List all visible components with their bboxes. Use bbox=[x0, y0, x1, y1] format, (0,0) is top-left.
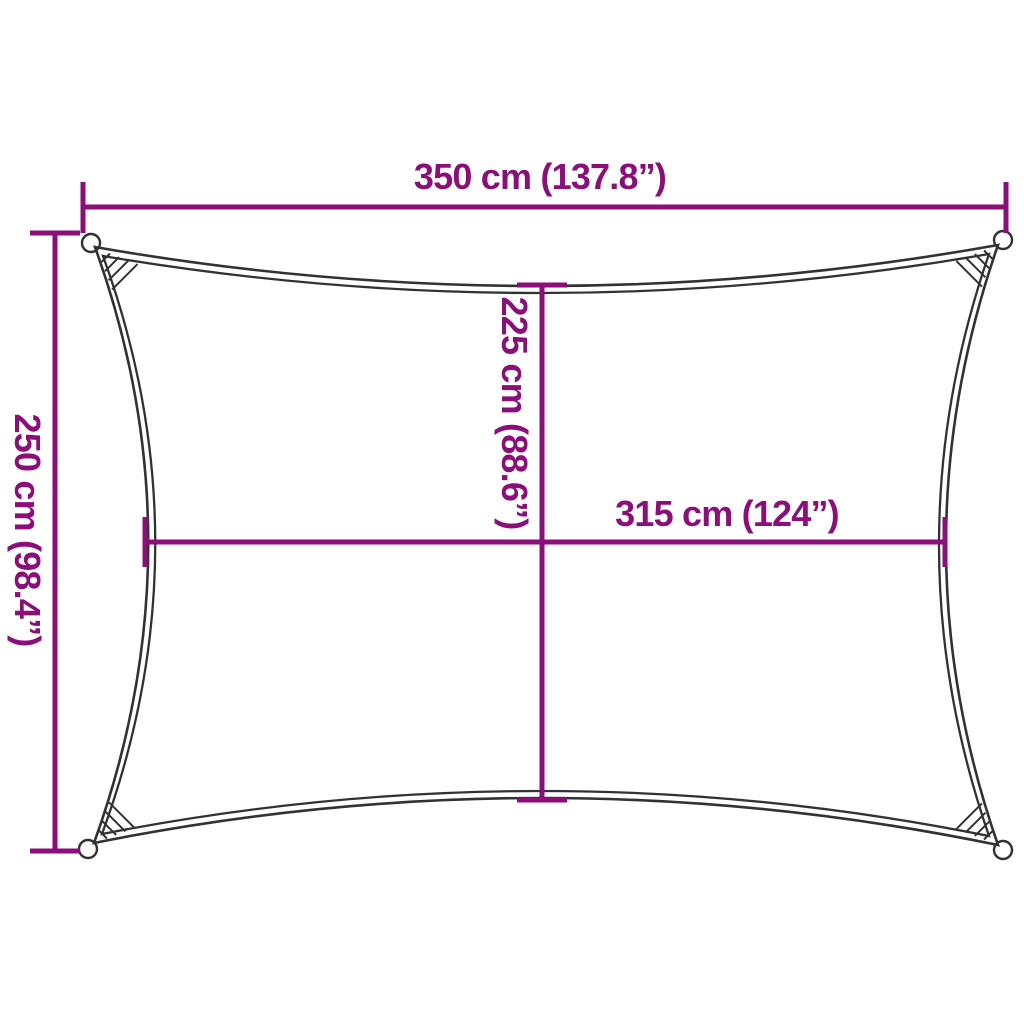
corner-ring-top-right-icon bbox=[994, 231, 1012, 249]
inner-height-dimension-label: 225 cm (88.6”) bbox=[494, 297, 534, 530]
outer-width-dimension-label: 350 cm (137.8”) bbox=[414, 157, 666, 197]
corner-stitches-group bbox=[90, 242, 1001, 848]
corner-ring-bottom-right-icon bbox=[994, 841, 1012, 859]
sail-outline-group bbox=[94, 245, 998, 845]
sail-inner-outline bbox=[102, 254, 989, 836]
corner-ring-bottom-left-icon bbox=[79, 840, 97, 858]
sail-outer-outline bbox=[94, 245, 998, 845]
corner-rings-group bbox=[79, 231, 1012, 859]
shade-sail-dimension-diagram: 350 cm (137.8”) 250 cm (98.4”) 225 cm (8… bbox=[0, 0, 1024, 1024]
outer-height-dimension-label: 250 cm (98.4”) bbox=[7, 414, 47, 647]
corner-ring-top-left-icon bbox=[82, 234, 100, 252]
inner-width-dimension-label: 315 cm (124”) bbox=[615, 494, 839, 534]
